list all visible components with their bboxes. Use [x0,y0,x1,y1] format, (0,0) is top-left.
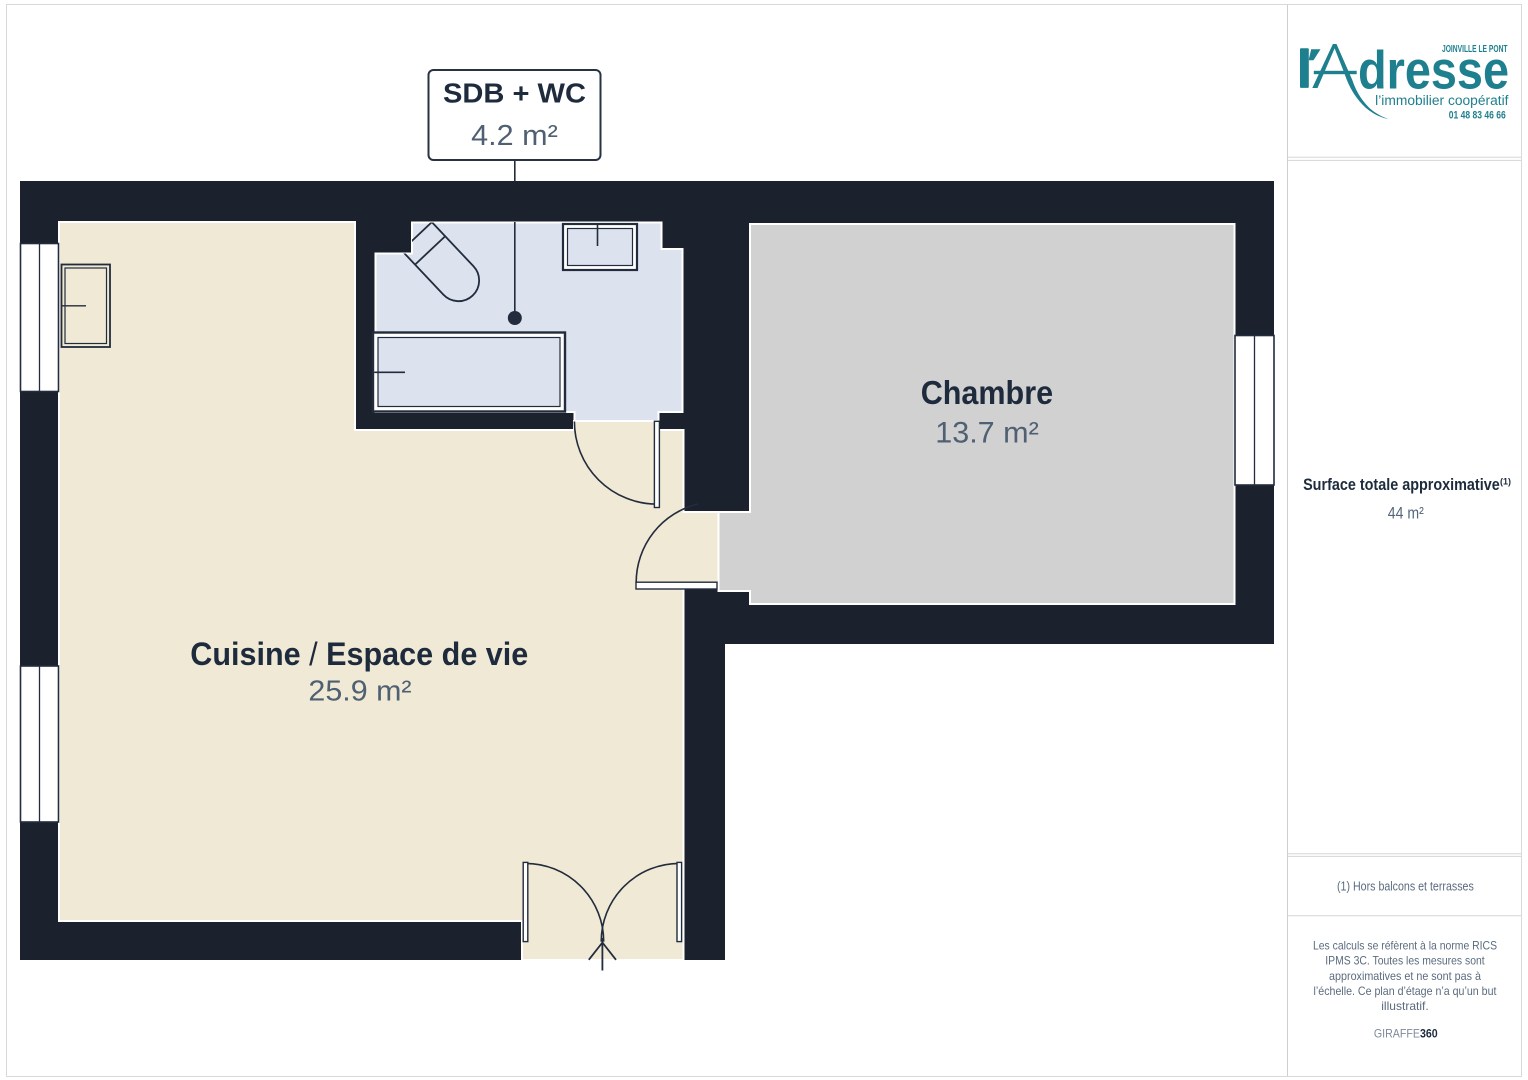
svg-text:01 48 83 46 66: 01 48 83 46 66 [1449,110,1506,122]
svg-text:44 m²: 44 m² [1388,505,1424,523]
svg-text:SDB + WC: SDB + WC [443,77,586,108]
svg-text:13.7 m²: 13.7 m² [935,416,1039,449]
svg-text:Chambre: Chambre [921,374,1053,412]
svg-text:4.2 m²: 4.2 m² [471,120,558,152]
svg-text:l’échelle. Ce plan d’étage n’a: l’échelle. Ce plan d’étage n’a qu’un but [1314,985,1498,998]
svg-text:(1): (1) [1500,476,1511,486]
svg-text:l’immobilier coopératif: l’immobilier coopératif [1375,93,1509,108]
svg-text:(1) Hors balcons et terrasses: (1) Hors balcons et terrasses [1337,878,1474,893]
svg-text:Surface totale approximative: Surface totale approximative [1303,476,1500,494]
svg-text:25.9 m²: 25.9 m² [308,676,411,708]
svg-text:IPMS 3C. Toutes les mesures so: IPMS 3C. Toutes les mesures sont [1325,955,1485,968]
svg-text:Cuisine / Espace de vie: Cuisine / Espace de vie [190,635,528,672]
svg-text:approximatives et ne sont pas: approximatives et ne sont pas à [1329,970,1481,983]
svg-text:dresse: dresse [1358,41,1509,101]
svg-text:GIRAFFE360: GIRAFFE360 [1374,1028,1438,1041]
svg-text:Les calculs se réfèrent à la n: Les calculs se réfèrent à la norme RICS [1313,940,1497,953]
svg-text:illustratif.: illustratif. [1381,1000,1429,1013]
